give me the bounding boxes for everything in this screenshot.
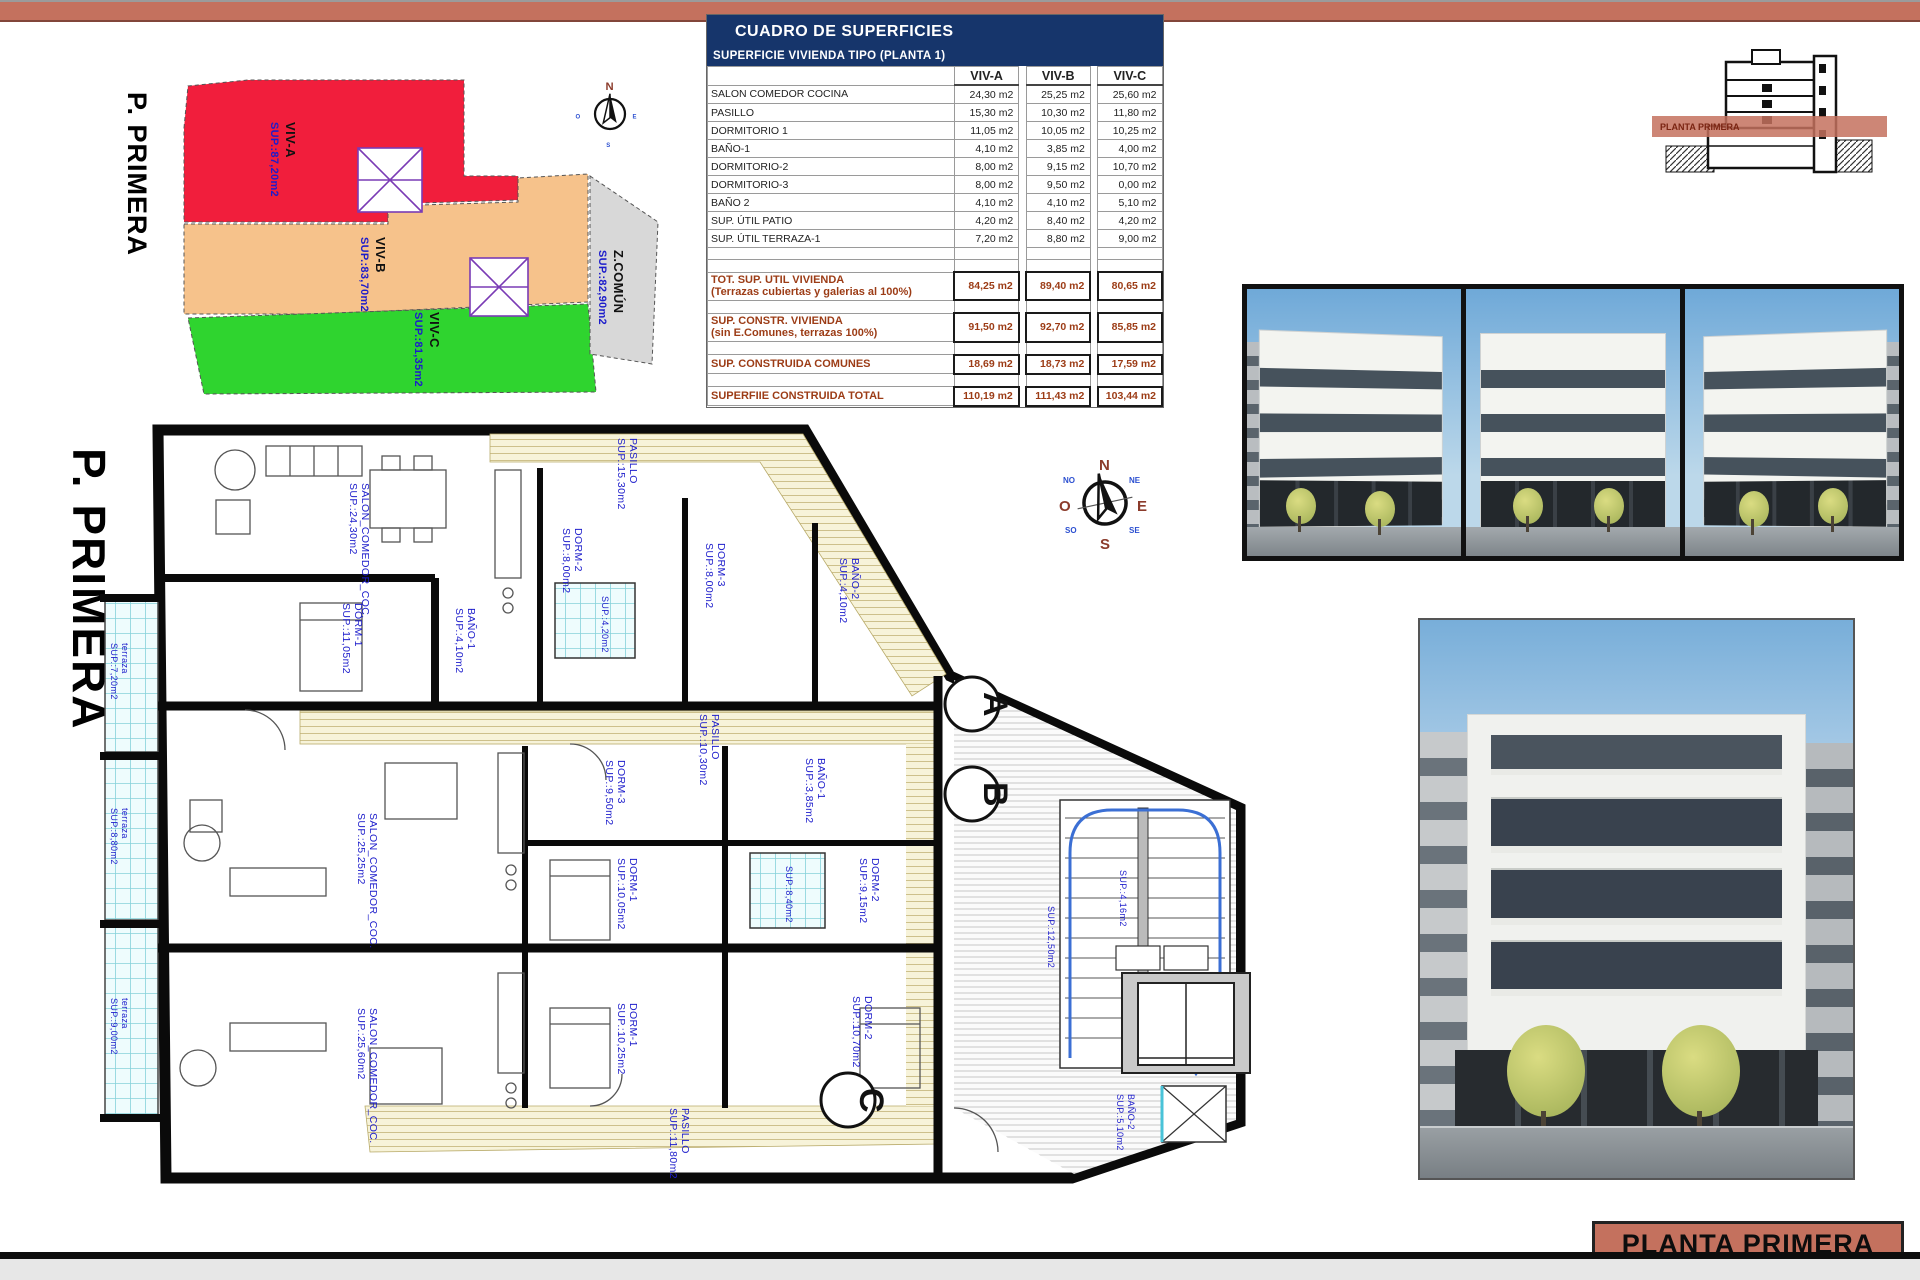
storefront: [1481, 481, 1665, 526]
svg-text:SUP.:4,16m2: SUP.:4,16m2: [1118, 870, 1128, 927]
spacer-row: [708, 342, 1163, 355]
street: [1420, 1126, 1853, 1178]
tree: [1526, 516, 1529, 532]
keyplan-patio-1: [358, 148, 422, 212]
spacer-row: [708, 260, 1163, 273]
column-header-row: VIV-A VIV-B VIV-C: [708, 67, 1163, 86]
street: [1247, 527, 1461, 556]
svg-text:SUP.:8,40m2: SUP.:8,40m2: [784, 866, 794, 923]
table-row: DORMITORIO-28,00 m29,15 m210,70 m2: [708, 158, 1163, 176]
facade-renders: [1242, 284, 1904, 561]
svg-text:C: C: [852, 1088, 890, 1113]
tree: [1378, 519, 1381, 535]
street: [1685, 527, 1899, 556]
keyplan-patio-2: [470, 258, 528, 316]
table-row: DORMITORIO-38,00 m29,50 m20,00 m2: [708, 176, 1163, 194]
svg-text:N: N: [1099, 457, 1110, 474]
building-facade: [1468, 715, 1806, 1055]
table-row: SALON COMEDOR COCINA24,30 m225,25 m225,6…: [708, 85, 1163, 104]
render-photo-right: [1685, 289, 1899, 556]
svg-text:SUP.:12,50m2: SUP.:12,50m2: [1046, 906, 1056, 968]
key-plan: VIV-A SUP.:87,20m2 VIV-B SUP.:83,70m2 VI…: [118, 62, 663, 397]
table-row: SUP. ÚTIL TERRAZA-17,20 m28,80 m29,00 m2: [708, 230, 1163, 248]
svg-text:SE: SE: [1129, 526, 1140, 535]
spacer-row: [708, 248, 1163, 260]
main-facade-render: [1418, 618, 1855, 1180]
table-row: BAÑO 24,10 m24,10 m25,10 m2: [708, 194, 1163, 212]
svg-text:S: S: [606, 143, 610, 149]
svg-text:Z.COMÚN: Z.COMÚN: [611, 250, 626, 313]
svg-text:O: O: [576, 115, 581, 121]
floor-plan: A B C N E S O NE SE SO NO SALO: [70, 408, 1270, 1220]
patio-a: [555, 583, 635, 658]
balcony-strip: [1491, 797, 1781, 854]
balcony-strip: [1491, 868, 1781, 925]
surface-table-grid: VIV-A VIV-B VIV-C SALON COMEDOR COCINA24…: [707, 66, 1163, 407]
plan-sheet: P. PRIMERA VIV-A SUP.:87,20m2 VIV-B SUP.…: [0, 0, 1920, 1280]
tree: [1507, 1025, 1585, 1117]
svg-text:NE: NE: [1129, 476, 1141, 485]
svg-text:O: O: [1059, 498, 1071, 515]
svg-text:SUP.:83,70m2: SUP.:83,70m2: [358, 237, 370, 312]
section-band-label: PLANTA PRIMERA: [1660, 122, 1740, 132]
corridor-b-hatch: [300, 711, 938, 744]
summary-row: SUPERFIIE CONSTRUIDA TOTAL 110,19 m2 111…: [708, 387, 1163, 406]
svg-text:SUP.:87,20m2: SUP.:87,20m2: [268, 122, 280, 197]
svg-text:SUP.:81,35m2: SUP.:81,35m2: [412, 312, 424, 387]
zone-viv-c: [188, 304, 596, 394]
render-photo-center: [1466, 289, 1680, 556]
table-row: PASILLO15,30 m210,30 m211,80 m2: [708, 104, 1163, 122]
summary-row: TOT. SUP. UTIL VIVIENDA(Terrazas cubiert…: [708, 272, 1163, 300]
svg-text:VIV-C: VIV-C: [427, 312, 442, 348]
render-photo-left: [1247, 289, 1461, 556]
svg-text:N: N: [606, 81, 614, 93]
bottom-margin: [0, 1259, 1920, 1280]
table-row: DORMITORIO 111,05 m210,05 m210,25 m2: [708, 122, 1163, 140]
col-viv-a: VIV-A: [954, 67, 1018, 86]
bottom-rule: [0, 1252, 1920, 1259]
table-row: BAÑO-14,10 m23,85 m24,00 m2: [708, 140, 1163, 158]
svg-text:VIV-A: VIV-A: [283, 122, 298, 158]
svg-text:NO: NO: [1063, 476, 1075, 485]
svg-text:E: E: [633, 115, 637, 121]
svg-text:S: S: [1100, 536, 1110, 553]
corridor-link-hatch: [906, 744, 938, 1106]
svg-text:B: B: [976, 782, 1014, 807]
tree: [1751, 519, 1754, 535]
compass-icon: [1071, 468, 1136, 530]
summary-row: SUP. CONSTRUIDA COMUNES 18,69 m2 18,73 m…: [708, 355, 1163, 374]
keyplan-compass-icon: N O E S: [576, 81, 637, 149]
svg-text:A: A: [976, 692, 1014, 717]
tree: [1662, 1025, 1740, 1117]
col-viv-c: VIV-C: [1098, 67, 1162, 86]
spacer-row: [708, 300, 1163, 313]
svg-text:VIV-B: VIV-B: [373, 237, 388, 273]
svg-text:SUP.:4,20m2: SUP.:4,20m2: [600, 596, 610, 653]
compass-labels: N E S O NE SE SO NO: [1059, 457, 1147, 553]
surface-table-title: CUADRO DE SUPERFICIES: [707, 15, 1163, 47]
surface-table: CUADRO DE SUPERFICIES SUPERFICIE VIVIEND…: [706, 14, 1164, 408]
street: [1466, 527, 1680, 556]
table-row: SUP. ÚTIL PATIO4,20 m28,40 m24,20 m2: [708, 212, 1163, 230]
summary-row: SUP. CONSTR. VIVIENDA(sin E.Comunes, ter…: [708, 313, 1163, 341]
spacer-row: [708, 374, 1163, 387]
tree: [1831, 516, 1834, 532]
balcony-strip: [1491, 940, 1781, 997]
roof-terrace: [1491, 735, 1781, 775]
storefront: [1704, 480, 1886, 527]
svg-text:SO: SO: [1065, 526, 1077, 535]
svg-text:SUP.:82,90m2: SUP.:82,90m2: [596, 250, 608, 325]
svg-text:E: E: [1137, 498, 1147, 515]
zone-viv-a: [184, 80, 518, 222]
col-viv-b: VIV-B: [1026, 67, 1090, 86]
tree: [1298, 516, 1301, 532]
shower-tray: [1162, 1086, 1226, 1142]
adjacent-building: [1884, 342, 1899, 526]
building-section-drawing: PLANTA PRIMERA: [1652, 28, 1887, 183]
tree: [1607, 516, 1610, 532]
surface-table-subtitle: SUPERFICIE VIVIENDA TIPO (PLANTA 1): [707, 47, 1163, 66]
